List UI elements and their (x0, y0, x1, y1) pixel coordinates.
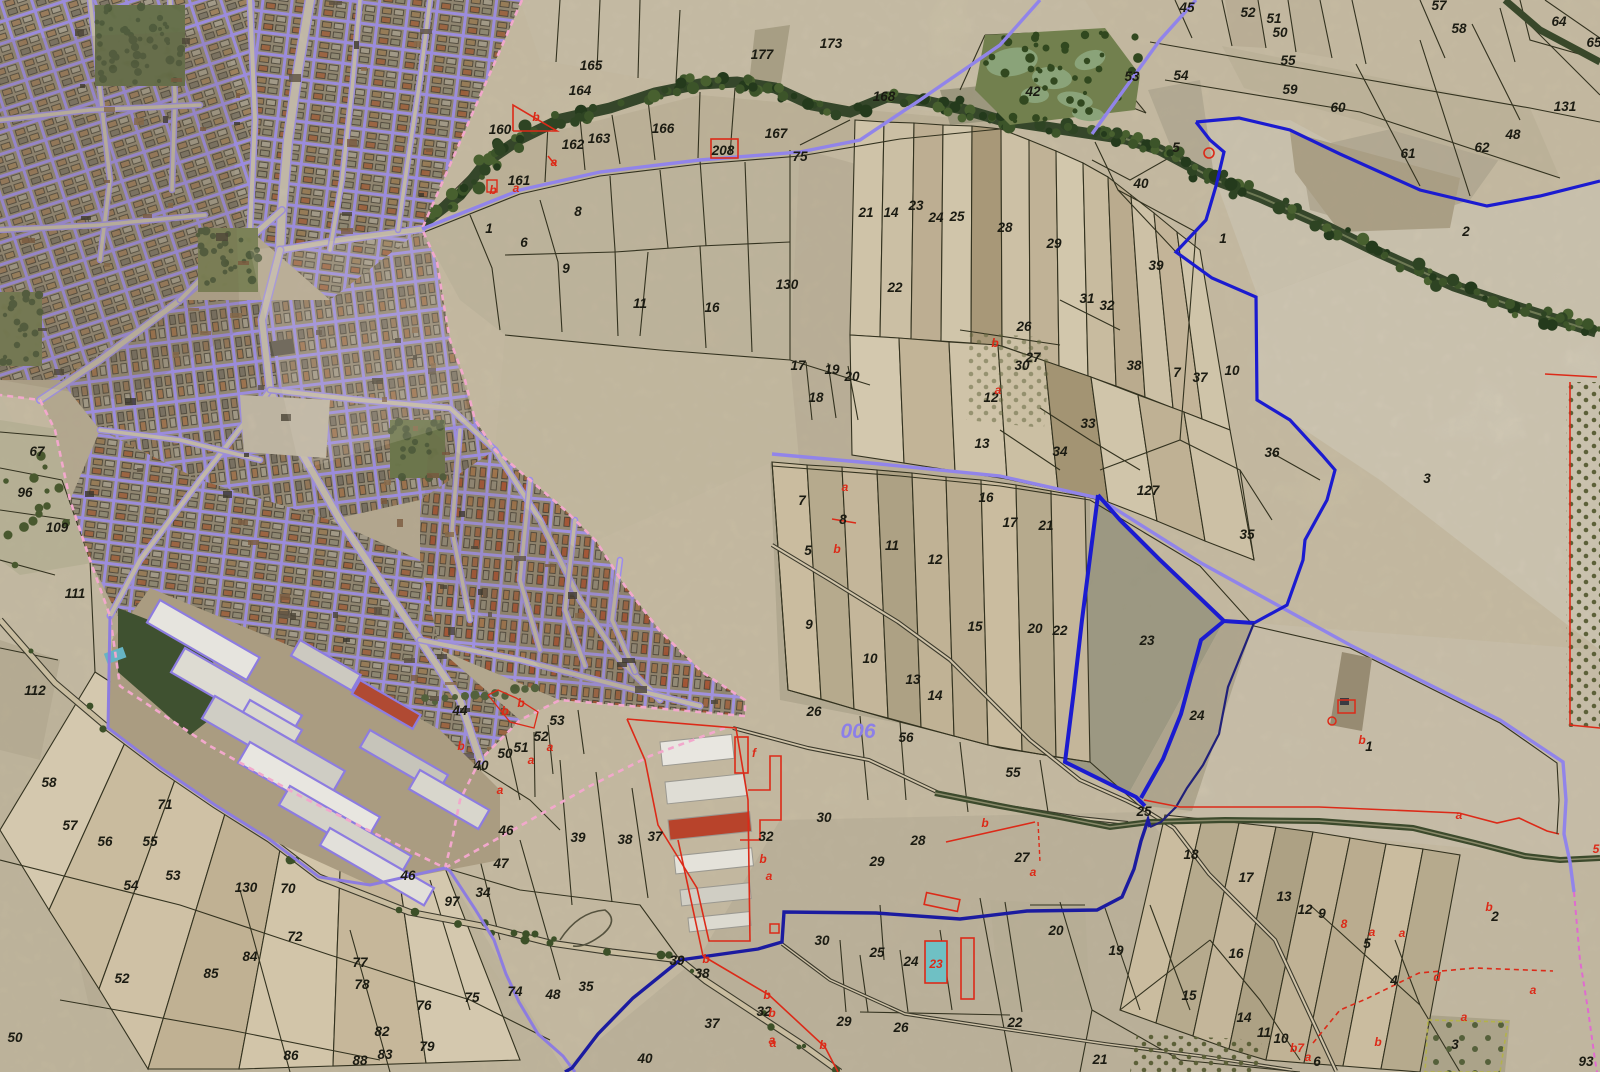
svg-text:130: 130 (235, 880, 258, 895)
svg-text:78: 78 (354, 977, 370, 992)
svg-text:177: 177 (751, 47, 775, 62)
svg-text:83: 83 (377, 1047, 393, 1062)
svg-text:14: 14 (1236, 1010, 1252, 1025)
svg-text:165: 165 (580, 58, 603, 73)
svg-text:53: 53 (549, 713, 565, 728)
svg-text:24: 24 (902, 954, 919, 969)
svg-text:b: b (702, 952, 709, 966)
svg-text:a: a (1369, 925, 1376, 939)
svg-text:46: 46 (399, 868, 416, 883)
svg-text:1: 1 (1219, 231, 1227, 246)
svg-text:10: 10 (1273, 1031, 1289, 1046)
svg-text:b7: b7 (1290, 1041, 1305, 1055)
svg-text:a: a (995, 383, 1002, 397)
svg-text:54: 54 (1173, 68, 1189, 83)
svg-text:2: 2 (1461, 224, 1470, 239)
svg-text:48: 48 (544, 987, 561, 1002)
svg-text:22: 22 (1006, 1015, 1023, 1030)
svg-text:b: b (457, 739, 464, 753)
svg-text:52: 52 (1240, 5, 1256, 20)
svg-text:55: 55 (1005, 765, 1021, 780)
svg-text:29: 29 (1045, 236, 1062, 251)
svg-text:74: 74 (507, 984, 523, 999)
svg-text:29: 29 (835, 1014, 852, 1029)
svg-text:47: 47 (492, 856, 510, 871)
svg-text:11: 11 (633, 296, 647, 311)
svg-text:14: 14 (883, 205, 899, 220)
svg-text:56: 56 (898, 730, 914, 745)
svg-text:b: b (759, 852, 766, 866)
svg-text:8: 8 (574, 204, 582, 219)
svg-text:67: 67 (29, 444, 46, 459)
svg-text:37: 37 (1192, 370, 1209, 385)
svg-text:14: 14 (927, 688, 943, 703)
svg-text:38: 38 (1126, 358, 1142, 373)
svg-text:168: 168 (873, 89, 896, 104)
svg-text:86: 86 (283, 1048, 299, 1063)
svg-text:b: b (1374, 1035, 1381, 1049)
svg-text:53: 53 (165, 868, 181, 883)
svg-text:109: 109 (46, 520, 69, 535)
svg-text:a: a (1399, 926, 1406, 940)
svg-text:39: 39 (1148, 258, 1164, 273)
svg-text:36: 36 (1264, 445, 1280, 460)
svg-text:12: 12 (1297, 902, 1313, 917)
svg-text:b: b (532, 110, 539, 124)
svg-text:25: 25 (868, 945, 885, 960)
svg-text:50: 50 (7, 1030, 23, 1045)
svg-text:52: 52 (114, 971, 130, 986)
svg-text:32: 32 (1099, 298, 1115, 313)
svg-text:21: 21 (1037, 518, 1053, 533)
svg-text:127: 127 (1137, 483, 1161, 498)
svg-text:17: 17 (1002, 515, 1019, 530)
svg-text:16: 16 (1228, 946, 1244, 961)
svg-text:5: 5 (804, 543, 812, 558)
svg-text:17: 17 (790, 358, 807, 373)
svg-text:a: a (551, 155, 558, 169)
svg-text:112: 112 (24, 683, 46, 698)
svg-text:46: 46 (497, 823, 514, 838)
svg-text:51: 51 (1266, 11, 1281, 26)
svg-text:3: 3 (1451, 1037, 1459, 1052)
svg-text:160: 160 (489, 122, 512, 137)
svg-text:a: a (528, 753, 535, 767)
svg-text:a: a (497, 783, 504, 797)
svg-text:57: 57 (1431, 0, 1448, 13)
svg-text:9: 9 (562, 261, 570, 276)
svg-text:3: 3 (1423, 471, 1431, 486)
svg-text:72: 72 (287, 929, 303, 944)
svg-text:a: a (842, 480, 849, 494)
svg-text:006: 006 (840, 720, 875, 743)
svg-text:70: 70 (280, 881, 296, 896)
svg-text:9: 9 (1318, 906, 1326, 921)
svg-text:85: 85 (203, 966, 219, 981)
svg-text:9: 9 (805, 617, 813, 632)
svg-text:24: 24 (1188, 708, 1205, 723)
svg-text:130: 130 (776, 277, 799, 292)
svg-text:13: 13 (974, 436, 990, 451)
svg-text:19: 19 (1108, 943, 1124, 958)
svg-text:32: 32 (758, 829, 774, 844)
svg-text:37: 37 (647, 829, 664, 844)
svg-text:a: a (1530, 983, 1537, 997)
svg-text:35: 35 (578, 979, 594, 994)
svg-text:75: 75 (792, 149, 808, 164)
svg-text:40: 40 (636, 1051, 653, 1066)
svg-text:97: 97 (444, 894, 461, 909)
svg-text:13: 13 (905, 672, 921, 687)
svg-text:23: 23 (907, 198, 924, 213)
svg-text:164: 164 (569, 83, 592, 98)
svg-text:167: 167 (765, 126, 789, 141)
svg-text:88: 88 (352, 1053, 368, 1068)
svg-text:53: 53 (1124, 69, 1140, 84)
svg-text:20: 20 (843, 369, 860, 384)
svg-text:25: 25 (948, 209, 965, 224)
svg-text:18: 18 (1183, 847, 1199, 862)
svg-text:a: a (547, 740, 554, 754)
svg-text:166: 166 (652, 121, 675, 136)
svg-text:22: 22 (886, 280, 903, 295)
svg-text:22: 22 (1051, 623, 1068, 638)
svg-text:50: 50 (497, 746, 513, 761)
svg-text:11: 11 (885, 538, 899, 553)
svg-text:34: 34 (475, 885, 491, 900)
svg-text:54: 54 (123, 878, 139, 893)
svg-text:28: 28 (996, 220, 1013, 235)
svg-text:65: 65 (1586, 35, 1600, 50)
svg-text:71: 71 (157, 797, 172, 812)
svg-text:b: b (768, 1006, 775, 1020)
svg-text:59: 59 (1282, 82, 1298, 97)
svg-text:b: b (1358, 733, 1365, 747)
svg-text:55: 55 (1280, 53, 1296, 68)
svg-text:62: 62 (1474, 140, 1490, 155)
svg-text:79: 79 (419, 1039, 435, 1054)
svg-text:23: 23 (1138, 633, 1155, 648)
svg-text:b: b (489, 183, 496, 197)
svg-text:29: 29 (868, 854, 885, 869)
svg-text:93: 93 (1578, 1054, 1594, 1069)
svg-text:51: 51 (513, 740, 528, 755)
svg-text:23: 23 (928, 957, 943, 971)
svg-text:25: 25 (1135, 804, 1152, 819)
svg-text:33: 33 (1080, 416, 1096, 431)
svg-text:40: 40 (472, 758, 489, 773)
svg-text:26: 26 (805, 704, 822, 719)
svg-text:a: a (1461, 1010, 1468, 1024)
svg-text:1: 1 (485, 221, 493, 236)
svg-text:76: 76 (416, 998, 432, 1013)
svg-text:16: 16 (978, 490, 994, 505)
svg-text:20: 20 (1047, 923, 1064, 938)
svg-text:19: 19 (824, 362, 840, 377)
svg-text:26: 26 (1015, 319, 1032, 334)
svg-text:a: a (766, 869, 773, 883)
svg-text:48: 48 (1504, 127, 1521, 142)
svg-text:a: a (769, 1033, 776, 1047)
svg-text:10: 10 (862, 651, 878, 666)
svg-text:44: 44 (451, 703, 468, 718)
svg-text:84: 84 (242, 949, 258, 964)
svg-text:30: 30 (814, 933, 830, 948)
svg-text:a: a (513, 181, 520, 195)
svg-text:173: 173 (820, 36, 843, 51)
svg-text:5: 5 (1172, 140, 1180, 155)
svg-text:60: 60 (1330, 100, 1346, 115)
svg-text:30: 30 (1014, 358, 1030, 373)
svg-text:28: 28 (909, 833, 926, 848)
svg-text:b: b (833, 542, 840, 556)
svg-text:82: 82 (374, 1024, 390, 1039)
svg-text:42: 42 (1024, 84, 1041, 99)
svg-text:27: 27 (1013, 850, 1031, 865)
svg-text:35: 35 (1239, 527, 1255, 542)
svg-text:55: 55 (142, 834, 158, 849)
svg-text:b: b (991, 336, 998, 350)
svg-text:111: 111 (65, 586, 86, 601)
svg-text:6: 6 (1313, 1054, 1321, 1069)
svg-text:17: 17 (1238, 870, 1255, 885)
svg-text:11: 11 (1257, 1025, 1271, 1040)
svg-text:a: a (1030, 865, 1037, 879)
svg-text:31: 31 (1079, 291, 1094, 306)
svg-text:26: 26 (892, 1020, 909, 1035)
svg-text:50: 50 (1272, 25, 1288, 40)
svg-text:39: 39 (570, 830, 586, 845)
svg-text:58: 58 (1451, 21, 1467, 36)
svg-text:16: 16 (704, 300, 720, 315)
svg-text:13: 13 (1276, 889, 1292, 904)
svg-text:a: a (1456, 808, 1463, 822)
svg-text:12: 12 (927, 552, 943, 567)
svg-text:d: d (1433, 970, 1441, 984)
svg-text:64: 64 (1551, 14, 1567, 29)
svg-text:30: 30 (816, 810, 832, 825)
svg-text:15: 15 (1181, 988, 1197, 1003)
svg-text:77: 77 (352, 955, 369, 970)
svg-text:20: 20 (1026, 621, 1043, 636)
svg-text:b: b (501, 704, 508, 718)
svg-text:21: 21 (857, 205, 873, 220)
svg-text:57: 57 (62, 818, 79, 833)
svg-text:163: 163 (588, 131, 611, 146)
svg-text:8: 8 (839, 512, 847, 527)
svg-text:58: 58 (41, 775, 57, 790)
svg-text:b: b (819, 1038, 826, 1052)
svg-text:45: 45 (1178, 0, 1195, 15)
svg-text:21: 21 (1091, 1052, 1107, 1067)
svg-text:b: b (1485, 900, 1492, 914)
svg-text:39: 39 (669, 953, 685, 968)
svg-text:6: 6 (520, 235, 528, 250)
svg-text:b: b (517, 696, 524, 710)
svg-text:24: 24 (927, 210, 944, 225)
svg-text:1: 1 (1365, 739, 1373, 754)
svg-text:56: 56 (97, 834, 113, 849)
svg-text:96: 96 (17, 485, 33, 500)
svg-text:b: b (981, 816, 988, 830)
svg-text:34: 34 (1052, 444, 1068, 459)
svg-text:b: b (763, 988, 770, 1002)
svg-text:131: 131 (1554, 99, 1577, 114)
svg-text:5: 5 (1593, 842, 1600, 856)
svg-text:162: 162 (562, 137, 585, 152)
svg-text:38: 38 (617, 832, 633, 847)
svg-text:8: 8 (1341, 917, 1348, 931)
svg-text:75: 75 (464, 990, 480, 1005)
svg-text:a: a (1305, 1050, 1312, 1064)
svg-text:38: 38 (694, 966, 710, 981)
svg-text:4: 4 (1389, 973, 1398, 988)
svg-text:10: 10 (1224, 363, 1240, 378)
svg-text:37: 37 (704, 1016, 721, 1031)
svg-text:40: 40 (1132, 176, 1149, 191)
svg-text:208: 208 (711, 143, 735, 158)
svg-text:15: 15 (967, 619, 983, 634)
svg-text:18: 18 (808, 390, 824, 405)
svg-text:61: 61 (1400, 146, 1415, 161)
